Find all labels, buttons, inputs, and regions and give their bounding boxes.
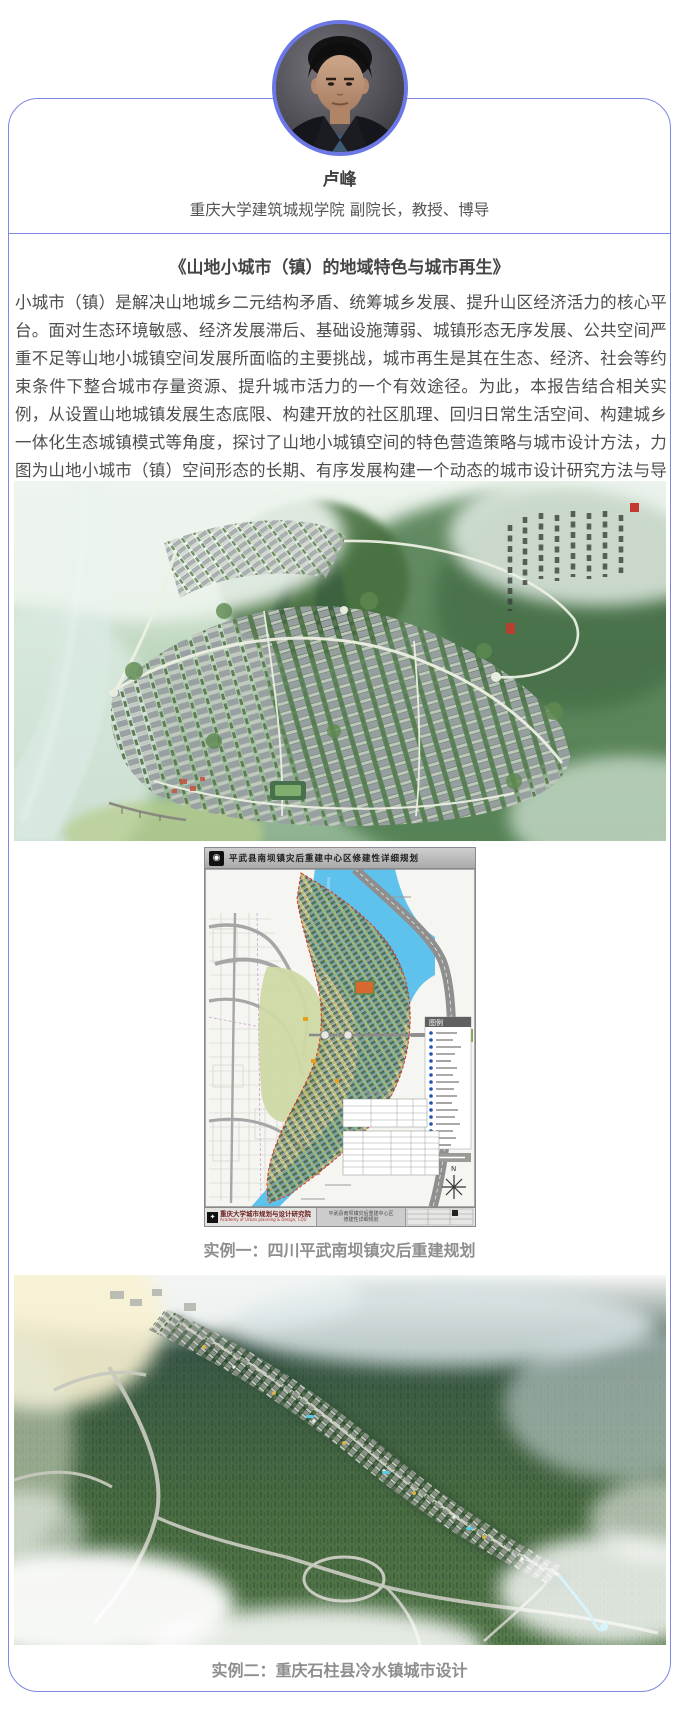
plan-map: 图例 — [204, 869, 476, 1207]
plan-footer-institute: ✦ 重庆大学城市规划与设计研究院 Academy of Urban planni… — [205, 1208, 317, 1226]
map-table-landuse — [343, 1099, 427, 1127]
figure-plan-sheet-nanba[interactable]: ◉ 平武县南坝镇灾后重建中心区修建性详细规划 — [204, 847, 476, 1227]
red-seal-top — [630, 503, 639, 512]
figure-aerial-render-nanba[interactable] — [14, 481, 666, 841]
figure-aerial-render-lengshui[interactable] — [14, 1275, 666, 1645]
article-abstract: 小城市（镇）是解决山地城乡二元结构矛盾、统筹城乡发展、提升山区经济活力的核心平台… — [15, 289, 667, 513]
author-name: 卢峰 — [9, 165, 670, 190]
article-page: 卢峰 重庆大学建筑城规学院 副院长，教授、博导 《山地小城市（镇）的地域特色与城… — [0, 0, 680, 1713]
svg-text:N: N — [451, 1165, 456, 1173]
author-avatar[interactable] — [272, 20, 408, 156]
plan-sheet-header: ◉ 平武县南坝镇灾后重建中心区修建性详细规划 — [204, 847, 476, 869]
plan-emblem-icon: ◉ — [209, 851, 224, 866]
author-portrait — [276, 24, 404, 152]
plan-sheet-title: 平武县南坝镇灾后重建中心区修建性详细规划 — [229, 852, 419, 864]
author-title: 重庆大学建筑城规学院 副院长，教授、博导 — [9, 198, 670, 220]
svg-text:图例: 图例 — [429, 1018, 443, 1027]
caption-example1: 实例一：四川平武南坝镇灾后重建规划 — [9, 1237, 670, 1261]
plan-footer-titleblock — [406, 1208, 475, 1226]
caption-example2: 实例二：重庆石柱县冷水镇城市设计 — [9, 1657, 670, 1681]
divider — [9, 233, 670, 234]
institute-logo-icon: ✦ — [207, 1212, 218, 1223]
red-seal-bottom — [506, 623, 515, 634]
author-card: 卢峰 重庆大学建筑城规学院 副院长，教授、博导 《山地小城市（镇）的地域特色与城… — [8, 98, 671, 1692]
plan-footer-project: 平武县南坝镇灾后重建中心区 修建性详细规划 — [317, 1208, 406, 1226]
article-title: 《山地小城市（镇）的地域特色与城市再生》 — [9, 253, 670, 278]
map-table-index — [343, 1131, 439, 1175]
plan-sheet-footer: ✦ 重庆大学城市规划与设计研究院 Academy of Urban planni… — [204, 1207, 476, 1227]
